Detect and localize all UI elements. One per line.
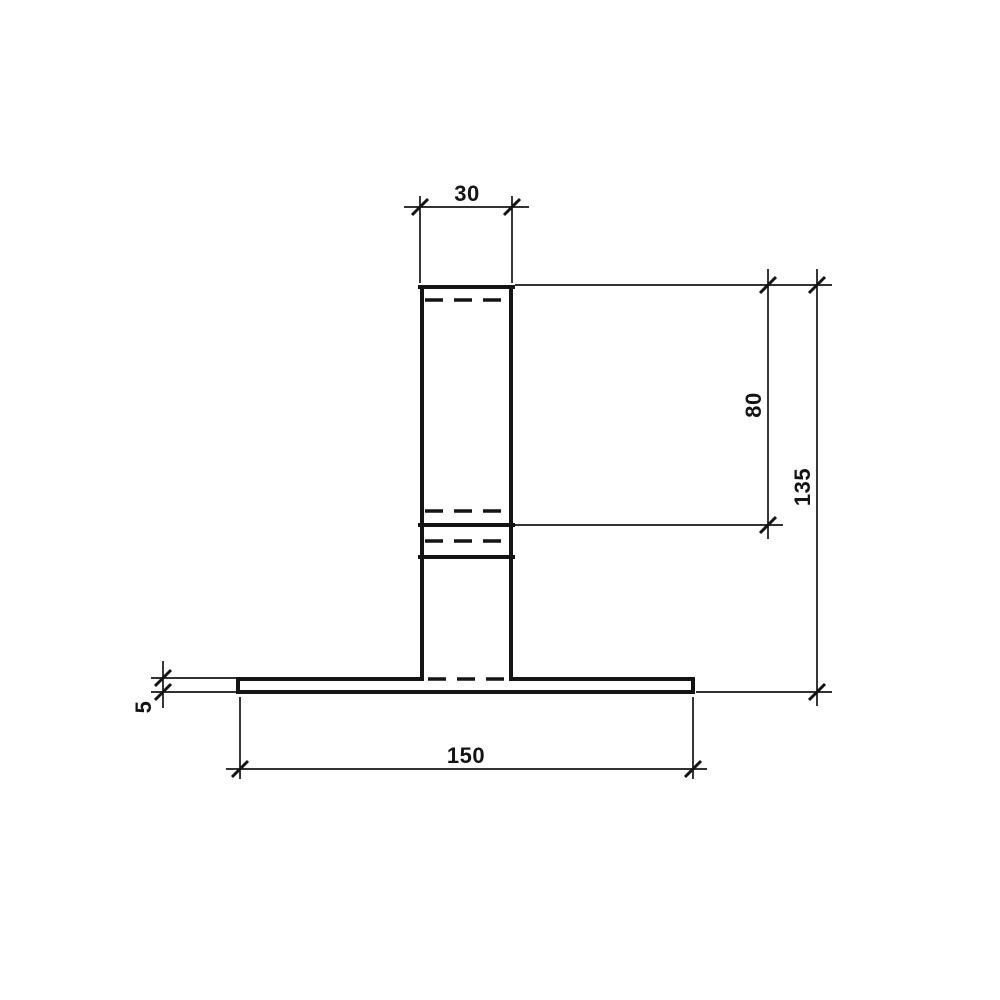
dimension-label-upper-height: 80 [741,392,766,417]
dimension-base-thickness: 5 [131,661,236,713]
technical-drawing-canvas: 30 80 135 5 [0,0,1000,1000]
dimension-base-width: 150 [226,697,707,779]
base-plate-outline [238,679,693,692]
dimension-label-base-thickness: 5 [131,701,156,714]
dimension-column-width: 30 [404,181,529,283]
hidden-lines [425,300,509,679]
dimension-label-column-width: 30 [454,181,479,206]
drawing-sheet: 30 80 135 5 [0,0,1000,1000]
dimension-label-total-height: 135 [790,468,815,506]
dimension-total-height: 135 [696,269,832,706]
dimension-label-base-width: 150 [447,743,485,768]
dimension-upper-height: 80 [513,269,783,539]
column-outline [420,287,513,679]
